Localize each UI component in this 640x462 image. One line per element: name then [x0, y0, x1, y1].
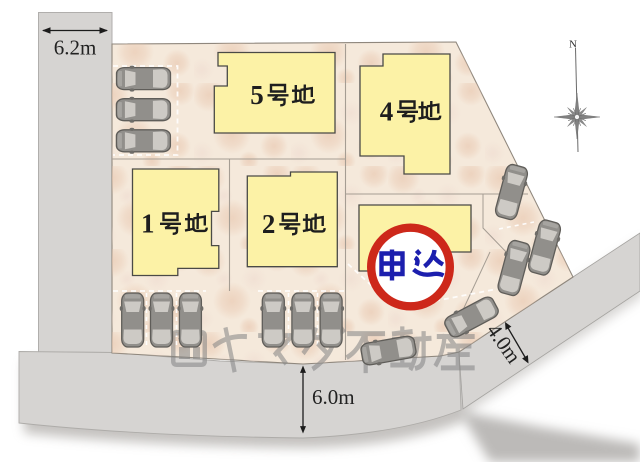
svg-text:6.0m: 6.0m — [312, 385, 355, 409]
svg-text:N: N — [569, 39, 577, 51]
svg-text:5: 5 — [250, 80, 264, 110]
svg-text:6.2m: 6.2m — [54, 36, 97, 60]
svg-text:1: 1 — [141, 209, 155, 239]
svg-text:4: 4 — [380, 97, 394, 127]
svg-text:2: 2 — [262, 209, 276, 239]
